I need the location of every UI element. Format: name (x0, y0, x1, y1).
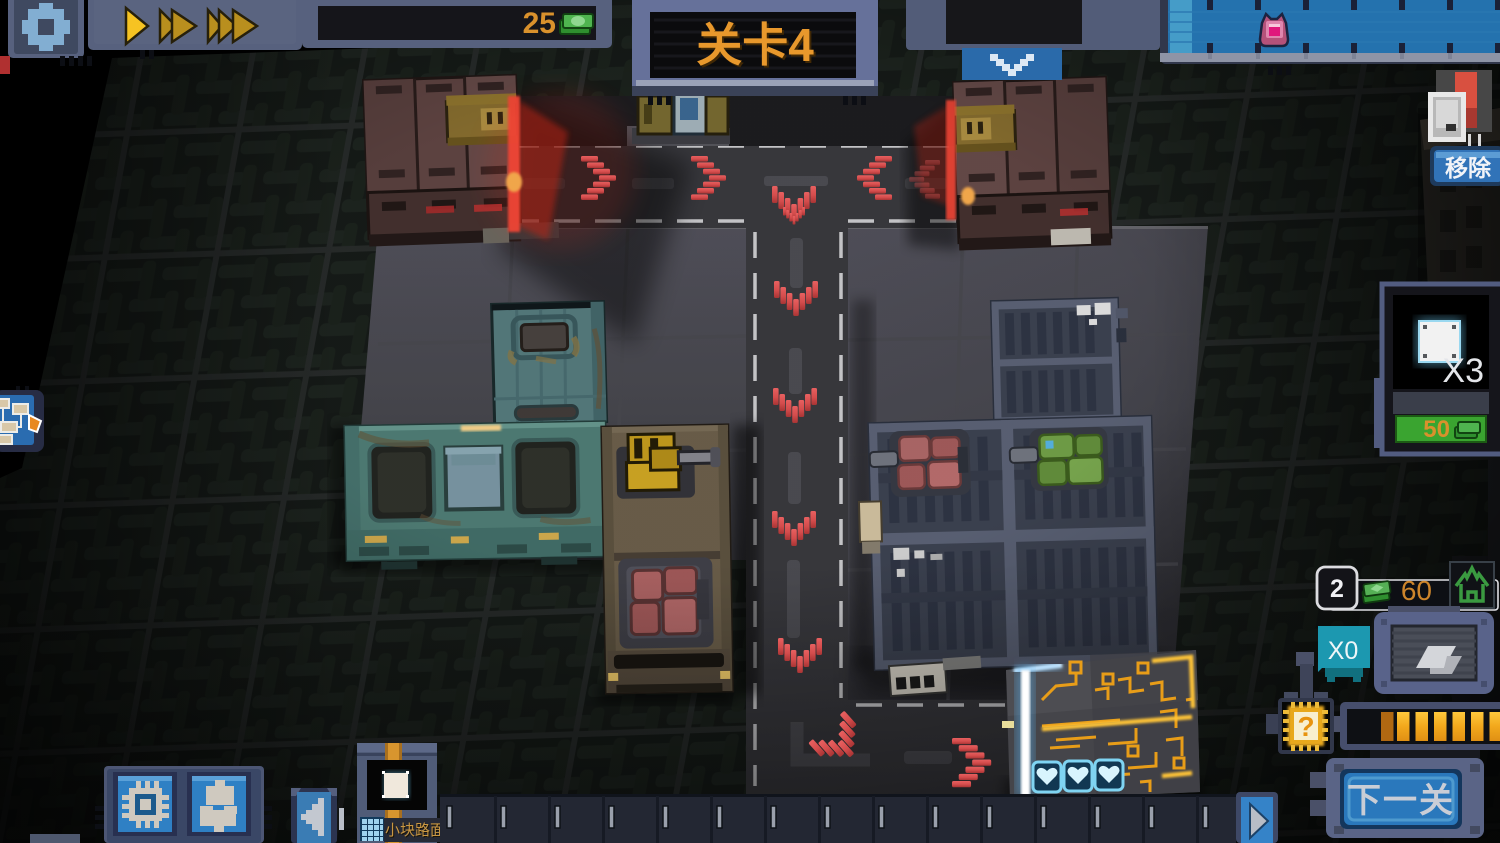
svg-text:60: 60 (1401, 575, 1432, 606)
svg-text:50: 50 (1423, 416, 1450, 443)
svg-text:下一关: 下一关 (1347, 782, 1455, 820)
svg-text:小块路面: 小块路面 (385, 822, 445, 839)
svg-text:X3: X3 (1442, 352, 1484, 390)
svg-text:?: ? (1297, 711, 1314, 742)
svg-text:2: 2 (1330, 575, 1344, 603)
svg-text:X0: X0 (1328, 637, 1359, 665)
svg-text:关卡4: 关卡4 (696, 19, 814, 71)
svg-text:移除: 移除 (1445, 155, 1492, 181)
svg-text:25: 25 (523, 7, 556, 40)
